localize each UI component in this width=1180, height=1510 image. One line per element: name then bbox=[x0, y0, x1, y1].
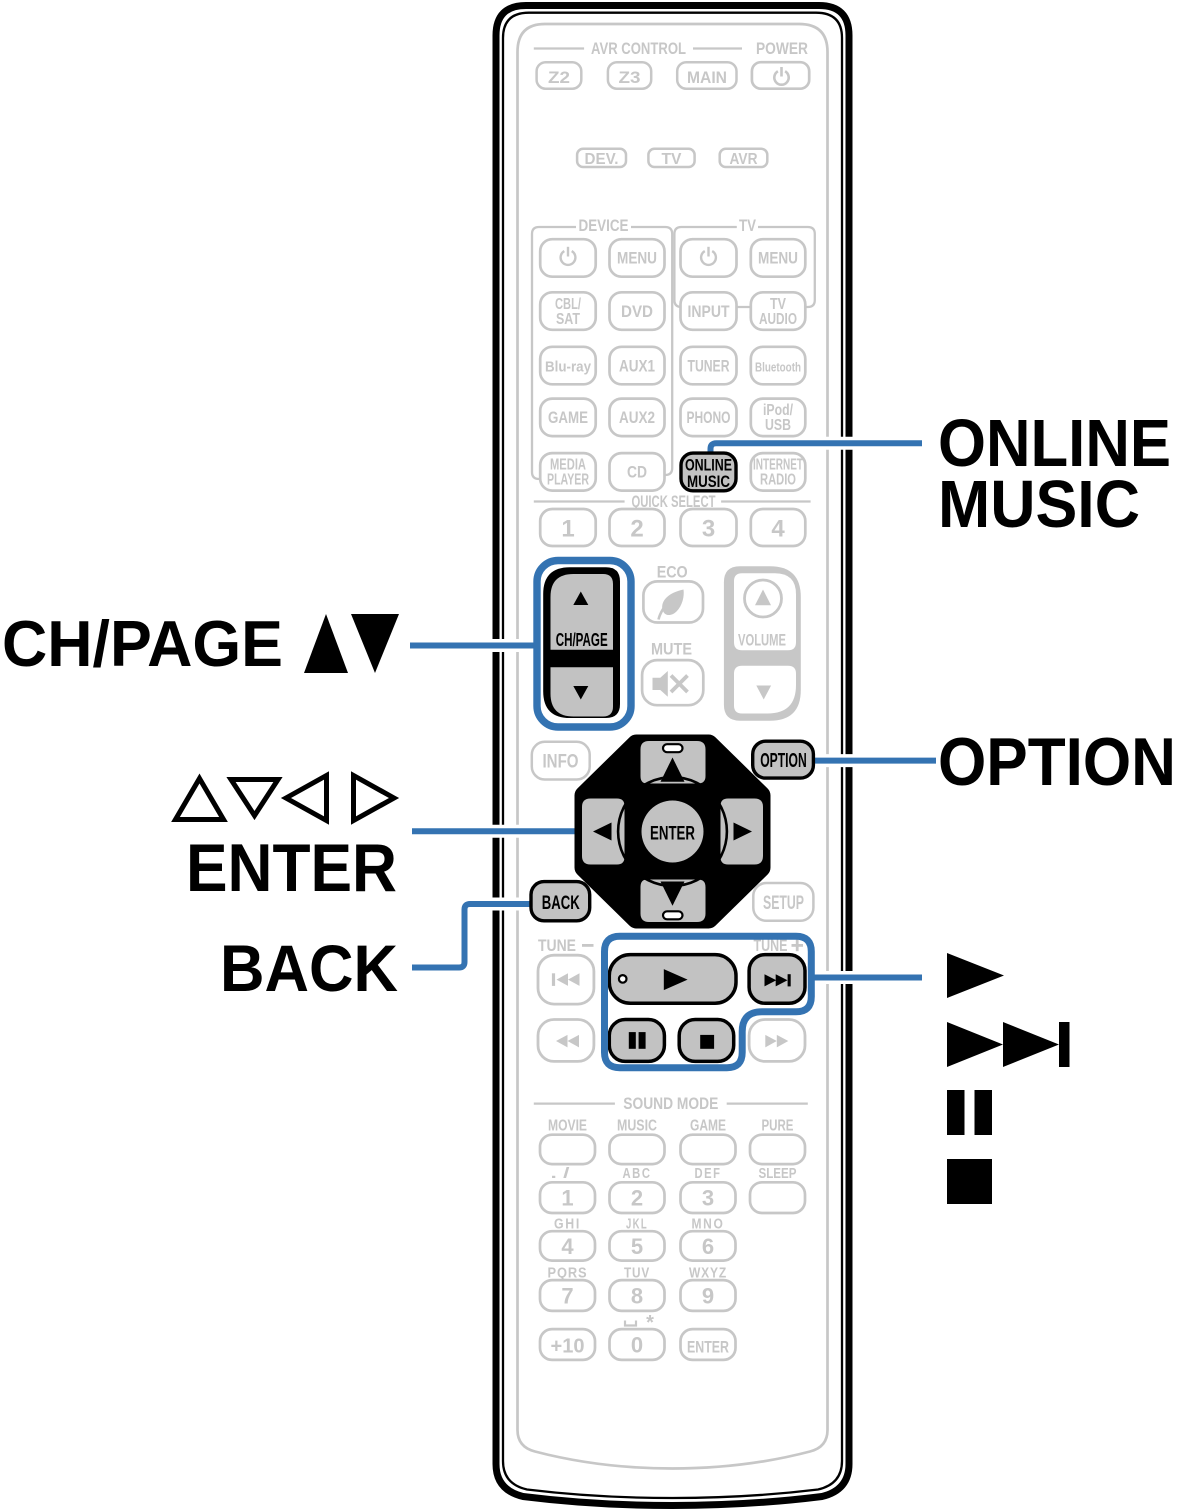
svg-text:AUX1: AUX1 bbox=[619, 356, 655, 375]
svg-text:GAME: GAME bbox=[690, 1118, 726, 1135]
svg-text:1: 1 bbox=[561, 1186, 573, 1211]
svg-text:5: 5 bbox=[631, 1234, 643, 1259]
svg-text:OPTION: OPTION bbox=[938, 724, 1176, 800]
svg-text:MUTE: MUTE bbox=[651, 640, 692, 659]
svg-text:TUNER: TUNER bbox=[688, 356, 730, 375]
svg-text:PURE: PURE bbox=[762, 1118, 794, 1135]
svg-text:SAT: SAT bbox=[556, 311, 580, 328]
svg-text:2: 2 bbox=[630, 516, 643, 543]
svg-text:OPTION: OPTION bbox=[760, 750, 807, 772]
svg-text:PHONO: PHONO bbox=[687, 408, 731, 427]
svg-text:MENU: MENU bbox=[758, 249, 798, 268]
svg-text:Z2: Z2 bbox=[548, 68, 570, 87]
svg-text:2: 2 bbox=[631, 1186, 643, 1211]
svg-text:INFO: INFO bbox=[543, 752, 579, 773]
svg-text:Bluetooth: Bluetooth bbox=[755, 359, 801, 374]
svg-text:ABC: ABC bbox=[623, 1166, 652, 1182]
svg-text:3: 3 bbox=[702, 516, 715, 543]
svg-text:MUSIC: MUSIC bbox=[687, 472, 730, 491]
svg-text:SOUND MODE: SOUND MODE bbox=[623, 1094, 718, 1113]
svg-text:PLAYER: PLAYER bbox=[547, 472, 589, 489]
svg-text:7: 7 bbox=[561, 1284, 573, 1309]
svg-text:POWER: POWER bbox=[756, 39, 808, 58]
svg-text:RADIO: RADIO bbox=[760, 472, 796, 489]
svg-text:BACK: BACK bbox=[542, 892, 580, 914]
svg-text:+10: +10 bbox=[551, 1336, 585, 1358]
svg-text:DVD: DVD bbox=[621, 302, 653, 321]
svg-text:AUDIO: AUDIO bbox=[759, 311, 797, 328]
svg-text:ENTER: ENTER bbox=[650, 824, 695, 845]
svg-text:ECO: ECO bbox=[657, 563, 688, 582]
svg-text:AVR CONTROL: AVR CONTROL bbox=[591, 39, 686, 58]
svg-text:Z3: Z3 bbox=[619, 68, 641, 87]
svg-text:BACK: BACK bbox=[220, 931, 398, 1005]
svg-text:MUSIC: MUSIC bbox=[617, 1118, 657, 1135]
svg-text:MAIN: MAIN bbox=[687, 68, 727, 87]
svg-text:USB: USB bbox=[765, 417, 791, 434]
svg-text:TUNE: TUNE bbox=[538, 936, 576, 955]
svg-text:AUX2: AUX2 bbox=[619, 408, 655, 427]
svg-text:CH/PAGE: CH/PAGE bbox=[556, 630, 608, 650]
svg-text:MUSIC: MUSIC bbox=[938, 467, 1140, 542]
svg-text:TV: TV bbox=[739, 216, 757, 235]
svg-text:AVR: AVR bbox=[730, 151, 758, 168]
svg-text:Blu-ray: Blu-ray bbox=[545, 358, 592, 375]
svg-text:GAME: GAME bbox=[548, 408, 588, 427]
svg-text:CD: CD bbox=[627, 463, 647, 482]
svg-text:SLEEP: SLEEP bbox=[759, 1166, 797, 1182]
svg-text:DEVICE: DEVICE bbox=[579, 216, 629, 235]
svg-text:4: 4 bbox=[771, 516, 785, 543]
svg-text:1: 1 bbox=[561, 516, 574, 543]
svg-text:8: 8 bbox=[631, 1284, 643, 1309]
svg-text:ENTER: ENTER bbox=[186, 830, 397, 906]
svg-text:4: 4 bbox=[561, 1234, 574, 1259]
svg-text:ENTER: ENTER bbox=[687, 1338, 729, 1357]
svg-text:TV: TV bbox=[662, 151, 682, 168]
svg-text:MENU: MENU bbox=[617, 249, 657, 268]
svg-text:6: 6 bbox=[702, 1234, 714, 1259]
svg-text:0: 0 bbox=[631, 1333, 643, 1358]
svg-text:MOVIE: MOVIE bbox=[548, 1118, 587, 1135]
svg-text:. /: . / bbox=[551, 1166, 570, 1182]
svg-text:SETUP: SETUP bbox=[763, 893, 804, 914]
svg-text:3: 3 bbox=[702, 1186, 714, 1211]
svg-text:9: 9 bbox=[702, 1284, 714, 1309]
svg-text:DEV.: DEV. bbox=[585, 151, 619, 168]
svg-text:CH/PAGE: CH/PAGE bbox=[2, 607, 283, 680]
svg-text:DEF: DEF bbox=[695, 1166, 722, 1182]
svg-text:INPUT: INPUT bbox=[688, 302, 731, 321]
svg-text:VOLUME: VOLUME bbox=[738, 631, 786, 650]
